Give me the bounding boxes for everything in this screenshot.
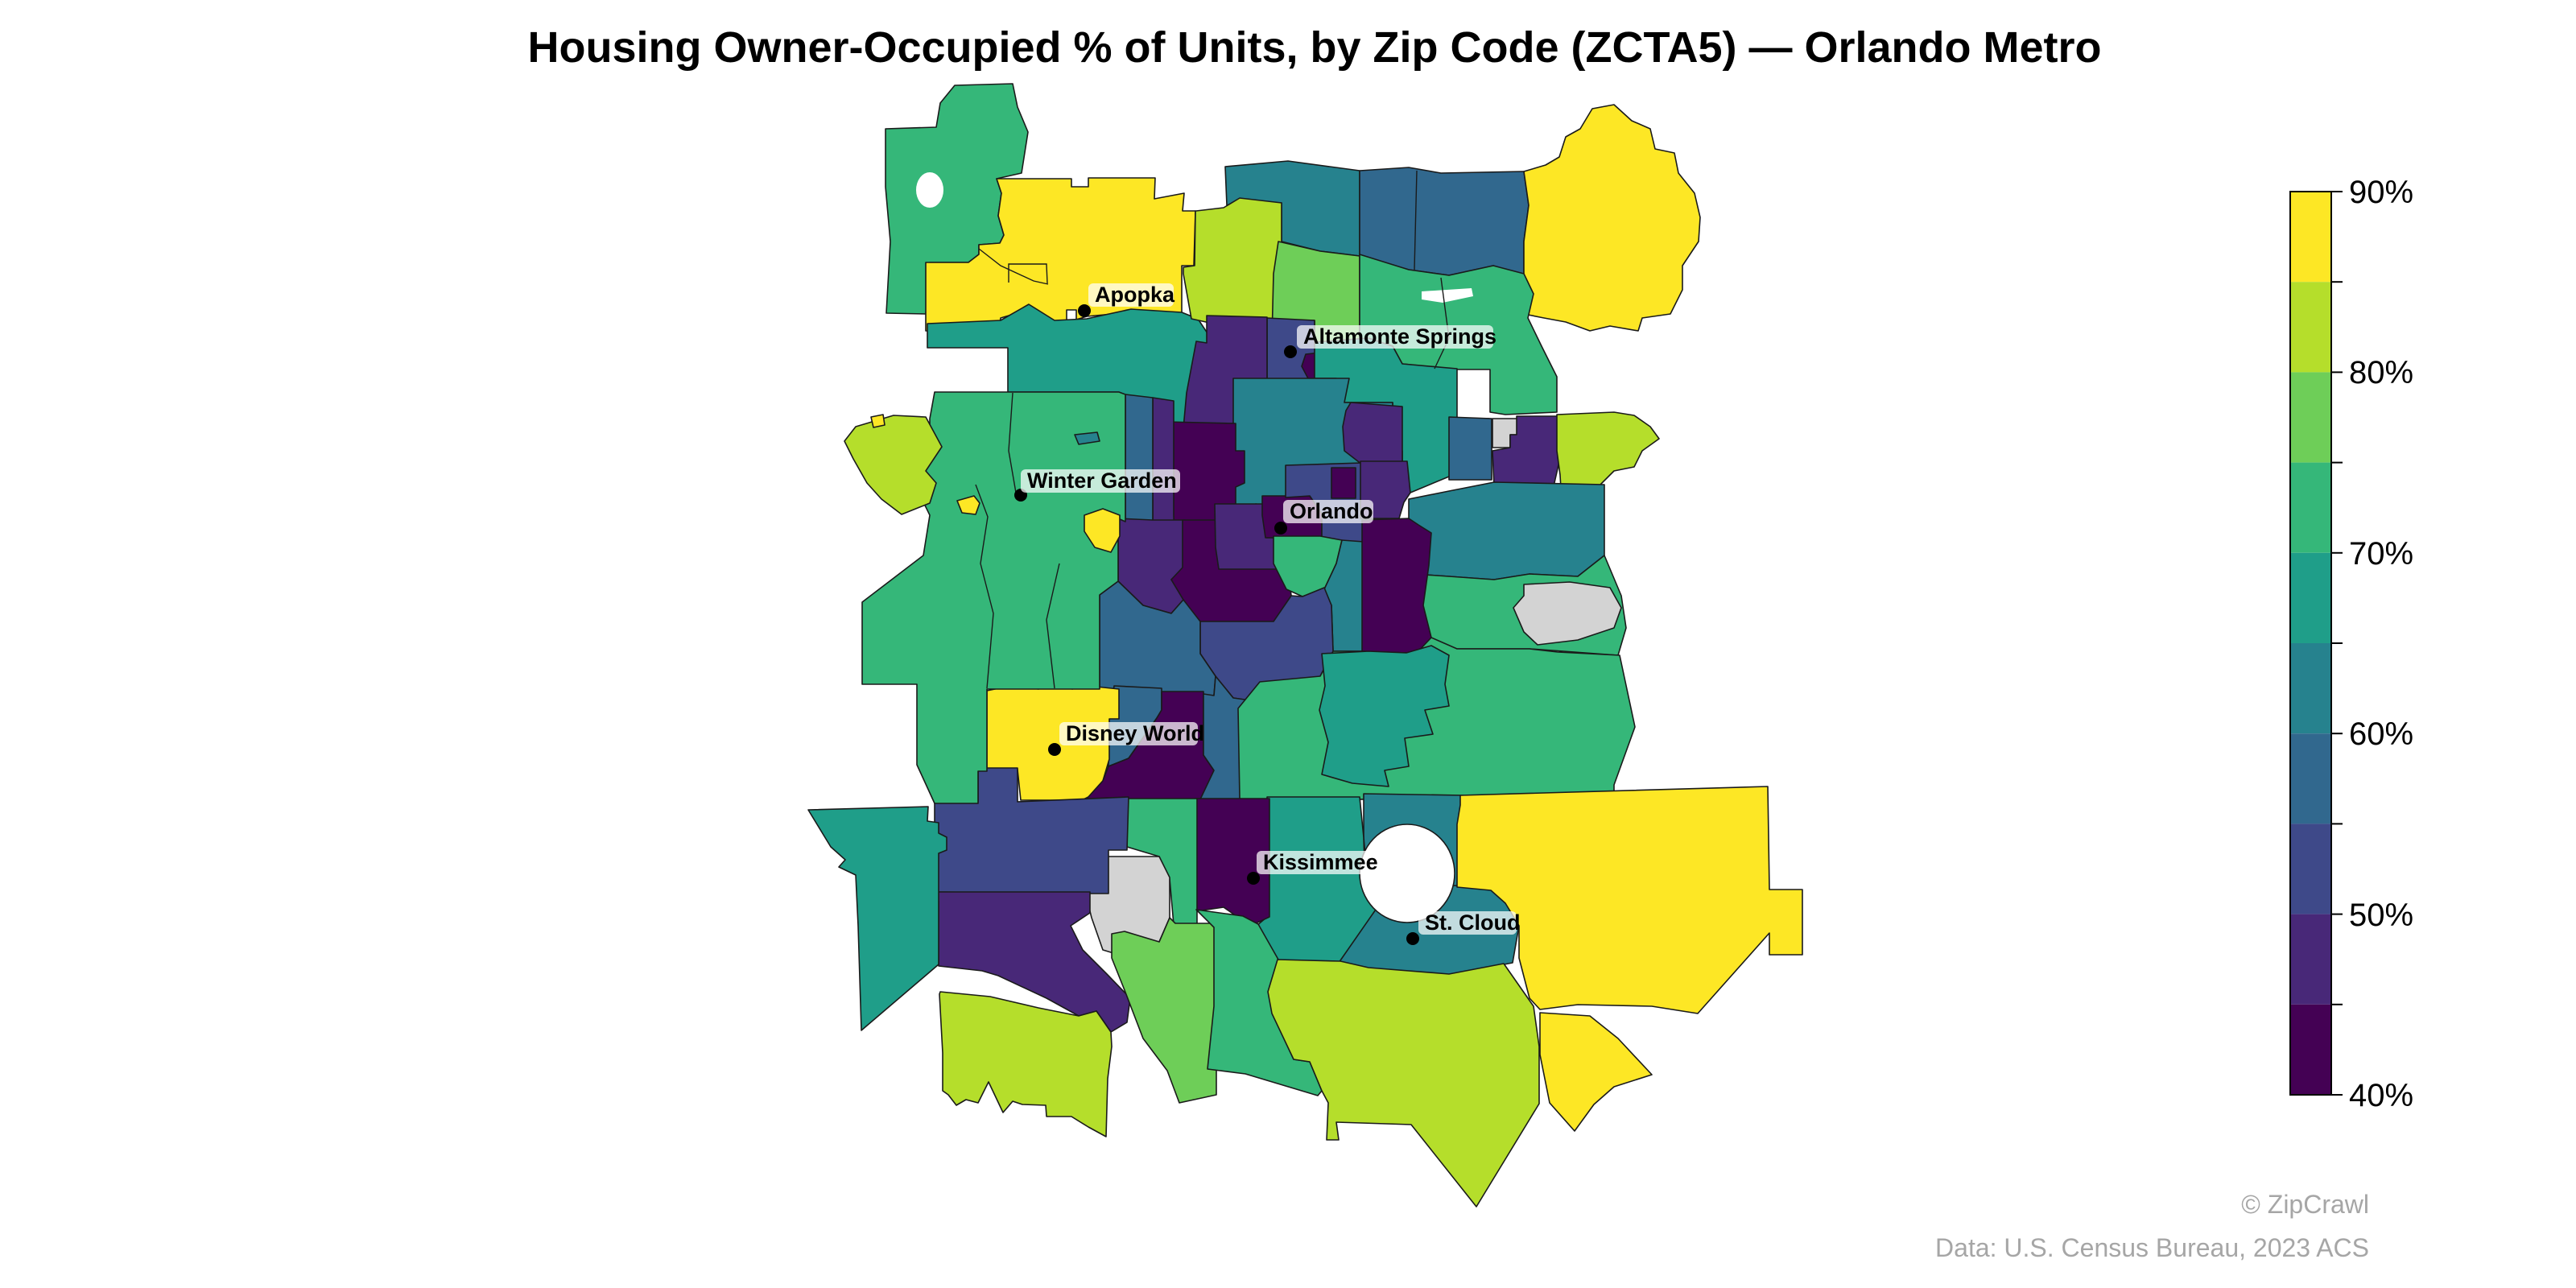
svg-text:60%: 60% bbox=[2349, 716, 2413, 752]
svg-text:Data: U.S. Census Bureau, 2023: Data: U.S. Census Bureau, 2023 ACS bbox=[1935, 1233, 2369, 1262]
svg-text:Kissimmee: Kissimmee bbox=[1263, 850, 1378, 874]
svg-text:Housing Owner-Occupied % of Un: Housing Owner-Occupied % of Units, by Zi… bbox=[527, 23, 2101, 72]
svg-text:40%: 40% bbox=[2349, 1078, 2413, 1113]
svg-text:Orlando: Orlando bbox=[1290, 499, 1373, 523]
svg-text:Disney World: Disney World bbox=[1066, 721, 1204, 745]
svg-text:Winter Garden: Winter Garden bbox=[1027, 469, 1177, 493]
svg-text:80%: 80% bbox=[2349, 355, 2413, 390]
svg-text:© ZipCrawl: © ZipCrawl bbox=[2241, 1190, 2369, 1219]
svg-text:90%: 90% bbox=[2349, 175, 2413, 210]
svg-text:70%: 70% bbox=[2349, 536, 2413, 572]
svg-text:50%: 50% bbox=[2349, 898, 2413, 933]
svg-text:Apopka: Apopka bbox=[1095, 283, 1175, 307]
svg-text:St. Cloud: St. Cloud bbox=[1425, 910, 1520, 935]
svg-text:Altamonte Springs: Altamonte Springs bbox=[1303, 324, 1496, 349]
